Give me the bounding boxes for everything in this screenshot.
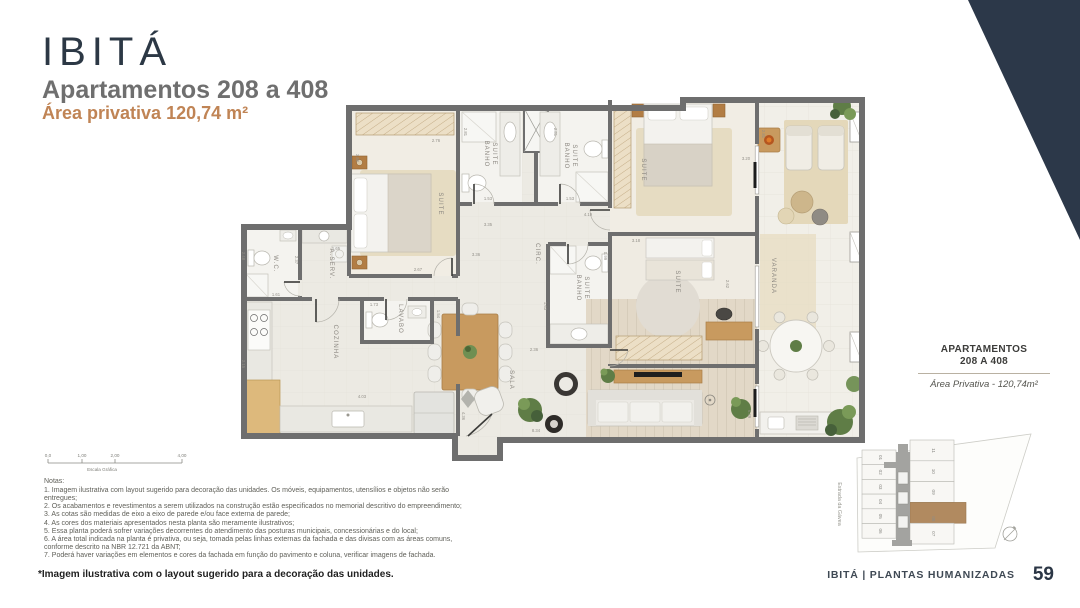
dim-label: 2.48 bbox=[241, 252, 246, 261]
room-label: SUITE bbox=[674, 270, 680, 293]
note-item: 2. Os acabamentos e revestimentos a sere… bbox=[44, 503, 468, 511]
site-plan: Estrada da Gávea 0102030405061110090807 bbox=[826, 432, 1040, 566]
room-label: LAVABO bbox=[397, 304, 403, 334]
dim-label: 4.03 bbox=[358, 394, 367, 399]
unit-number: 08 bbox=[931, 516, 936, 522]
compass-icon bbox=[1003, 526, 1017, 541]
dim-label: 2.67 bbox=[414, 267, 423, 272]
note-item: 6. A área total indicada na planta é pri… bbox=[44, 536, 468, 552]
footer-right: IBITÁ | PLANTAS HUMANIZADAS 59 bbox=[827, 564, 1054, 586]
room-label: W.C. bbox=[272, 255, 278, 272]
room-label: SUITE bbox=[437, 192, 443, 215]
dim-label: 2.37 bbox=[294, 256, 299, 265]
dim-label: 8.34 bbox=[532, 428, 541, 433]
page-subtitle: Área privativa 120,74 m² bbox=[42, 103, 248, 124]
scale-bar: 0,0 1,00 2,00 4,00 Escala Gráfica bbox=[36, 450, 226, 474]
unit-number: 01 bbox=[878, 455, 883, 461]
unit-number: 02 bbox=[878, 470, 883, 476]
floor-plan: SUITEBANHOSUITEBANHOSUITESUITEVARANDACIR… bbox=[236, 84, 866, 464]
room-label: BANHO bbox=[575, 275, 581, 302]
side-panel: APARTAMENTOS 208 A 408 Área Privativa - … bbox=[918, 344, 1050, 390]
building-units bbox=[862, 440, 966, 544]
unit-number: 06 bbox=[878, 528, 883, 534]
room-label: BANHO bbox=[483, 141, 489, 168]
scale-tick: 1,00 bbox=[78, 453, 87, 458]
unit-number: 11 bbox=[931, 448, 936, 453]
room-label: CIRC. bbox=[534, 243, 540, 265]
unit-number: 05 bbox=[878, 514, 883, 520]
dim-label: 3.35 bbox=[484, 222, 493, 227]
unit-number: 09 bbox=[931, 490, 936, 496]
scale-caption: Escala Gráfica bbox=[87, 467, 117, 472]
unit-number: 04 bbox=[878, 499, 883, 505]
notes: Notas: 1. Imagem ilustrativa com layout … bbox=[44, 478, 468, 560]
core-elevators bbox=[898, 472, 908, 528]
note-item: 3. As cotas são medidas de eixo a eixo d… bbox=[44, 511, 468, 519]
side-panel-divider bbox=[918, 373, 1050, 374]
dim-label: 6.39 bbox=[747, 410, 752, 419]
dim-label: 3.36 bbox=[472, 252, 481, 257]
unit-number: 10 bbox=[931, 469, 936, 475]
tv-console bbox=[601, 369, 703, 384]
note-item: 5. Essa planta poderá sofrer variações d… bbox=[44, 528, 468, 536]
notes-heading: Notas: bbox=[44, 478, 468, 486]
dim-label: 1.65 bbox=[332, 246, 341, 251]
dim-label: 2.76 bbox=[432, 138, 441, 143]
scale-tick: 2,00 bbox=[111, 453, 120, 458]
dim-label: 2.36 bbox=[530, 347, 539, 352]
unit-number: 07 bbox=[931, 531, 936, 537]
dim-label: 1.53 bbox=[484, 196, 493, 201]
dim-label: 2.62 bbox=[725, 280, 730, 289]
side-panel-area: Área Privativa - 120,74m² bbox=[918, 379, 1050, 390]
footer-disclaimer: *Imagem ilustrativa com o layout sugerid… bbox=[38, 569, 394, 580]
dim-label: 1.54 bbox=[436, 310, 441, 319]
highlighted-unit bbox=[910, 502, 966, 523]
dim-label: 4.36 bbox=[461, 412, 466, 421]
side-panel-units: 208 A 408 bbox=[918, 356, 1050, 368]
dim-label: 3.20 bbox=[742, 156, 751, 161]
room-label: A.SERV. bbox=[328, 249, 334, 280]
side-panel-title: APARTAMENTOS bbox=[918, 344, 1050, 356]
grill-counter bbox=[760, 412, 832, 434]
unit-number: 03 bbox=[878, 484, 883, 490]
dim-label: 2.81 bbox=[761, 130, 766, 139]
footer-brand: IBITÁ | PLANTAS HUMANIZADAS bbox=[827, 569, 1015, 581]
room-label: SUITE bbox=[571, 144, 577, 167]
page: IBITÁ Apartamentos 208 a 408 Área privat… bbox=[0, 0, 1080, 608]
notes-list: 1. Imagem ilustrativa com layout sugerid… bbox=[44, 487, 468, 560]
dim-label: 2.81 bbox=[463, 128, 468, 137]
dim-label: 2.81 bbox=[553, 128, 558, 137]
page-number: 59 bbox=[1033, 564, 1054, 586]
corner-accent bbox=[968, 0, 1080, 240]
dim-label: 0.99 bbox=[603, 252, 608, 261]
dim-label: 4.19 bbox=[584, 212, 593, 217]
dim-label: 2.15 bbox=[241, 360, 246, 369]
brand-logo: IBITÁ bbox=[42, 30, 172, 75]
room-label: SALA bbox=[508, 370, 514, 390]
street-label: Estrada da Gávea bbox=[836, 482, 842, 525]
note-item: 4. As cores dos materiais apresentados n… bbox=[44, 520, 468, 528]
dim-label: 1.61 bbox=[272, 292, 281, 297]
dim-label: 3.18 bbox=[632, 238, 641, 243]
note-item: 1. Imagem ilustrativa com layout sugerid… bbox=[44, 487, 468, 503]
sofa bbox=[588, 390, 702, 426]
room-label: SUITE bbox=[583, 276, 589, 299]
note-item: 7. Poderá haver variações em elementos e… bbox=[44, 552, 468, 560]
room-label: VARANDA bbox=[770, 258, 776, 294]
scale-tick: 0,0 bbox=[45, 453, 52, 458]
dim-label: 3.80 bbox=[355, 154, 360, 163]
room-label: SUITE bbox=[491, 142, 497, 165]
room-label: COZINHA bbox=[332, 325, 338, 360]
room-label: BANHO bbox=[563, 143, 569, 170]
room-label: SUITE bbox=[640, 158, 646, 181]
dim-label: 1.73 bbox=[370, 302, 379, 307]
scale-tick: 4,00 bbox=[178, 453, 187, 458]
dim-label: 1.53 bbox=[566, 196, 575, 201]
dim-label: 1.63 bbox=[543, 302, 548, 311]
